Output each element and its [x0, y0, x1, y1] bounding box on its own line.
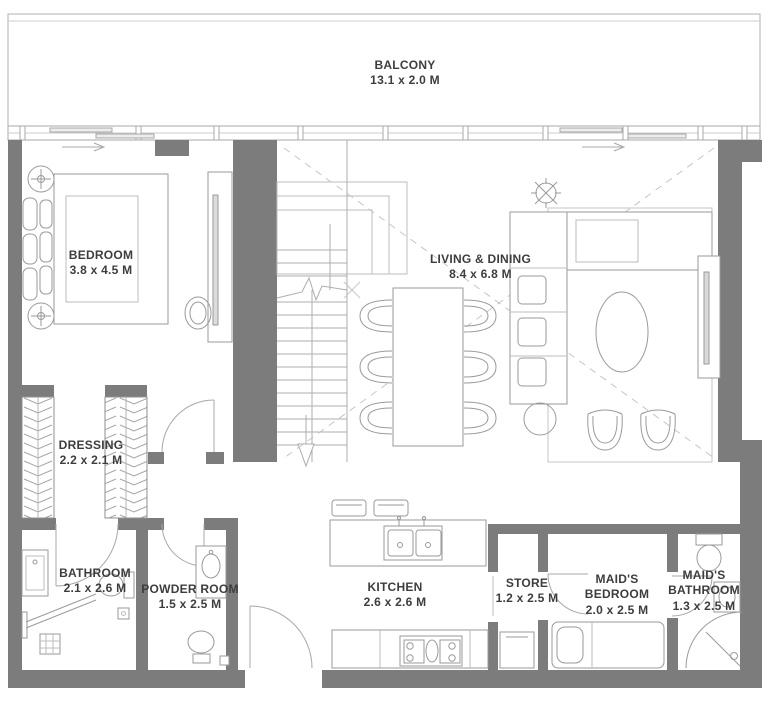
stove-icon — [400, 636, 462, 666]
room-name: MAID'S BATHROOM — [652, 568, 756, 599]
room-dims: 8.4 x 6.8 M — [393, 267, 568, 282]
side-table-icon — [524, 403, 556, 435]
room-name: KITCHEN — [333, 580, 457, 595]
ceiling-fan-icon — [531, 178, 561, 208]
room-label-kitchen: KITCHEN 2.6 x 2.6 M — [333, 580, 457, 611]
room-dims: 2.1 x 2.6 M — [33, 581, 157, 596]
stairs — [277, 140, 407, 466]
maid-shower-icon — [686, 612, 742, 668]
dining-table-icon — [393, 288, 463, 446]
floor-plan: BALCONY 13.1 x 2.0 M BEDROOM 3.8 x 4.5 M… — [0, 0, 768, 703]
room-dims: 3.8 x 4.5 M — [36, 263, 166, 278]
room-label-maids-bathroom: MAID'S BATHROOM 1.3 x 2.5 M — [652, 568, 756, 614]
room-label-store: STORE 1.2 x 2.5 M — [482, 576, 572, 607]
room-name: LIVING & DINING — [393, 252, 568, 267]
room-dims: 2.6 x 2.6 M — [333, 595, 457, 610]
room-dims: 1.5 x 2.5 M — [140, 597, 240, 612]
bar-stool-icon — [332, 500, 408, 516]
room-label-living-dining: LIVING & DINING 8.4 x 6.8 M — [393, 252, 568, 283]
dresser-icon — [208, 172, 232, 342]
room-dims: 1.2 x 2.5 M — [482, 591, 572, 606]
room-label-bedroom: BEDROOM 3.8 x 4.5 M — [36, 248, 166, 279]
coffee-table-icon — [596, 292, 648, 372]
maid-bed-icon — [552, 622, 664, 668]
room-name: POWDER ROOM — [140, 582, 240, 597]
powder-toilet-icon — [188, 631, 229, 665]
room-dims: 2.2 x 2.1 M — [30, 453, 152, 468]
room-name: DRESSING — [30, 438, 152, 453]
maid-toilet-icon — [696, 534, 722, 571]
armchair-icon — [588, 410, 675, 450]
tv-unit-icon — [698, 256, 720, 378]
room-name: BALCONY — [305, 58, 505, 73]
window-band — [8, 126, 760, 140]
shower-icon — [22, 594, 96, 654]
room-label-balcony: BALCONY 13.1 x 2.0 M — [305, 58, 505, 89]
sofa-icon — [510, 212, 712, 404]
room-dims: 1.3 x 2.5 M — [652, 599, 756, 614]
room-name: BATHROOM — [33, 566, 157, 581]
room-dims: 13.1 x 2.0 M — [305, 73, 505, 88]
room-name: BEDROOM — [36, 248, 166, 263]
room-label-dressing: DRESSING 2.2 x 2.1 M — [30, 438, 152, 469]
room-name: STORE — [482, 576, 572, 591]
stool-icon — [185, 297, 211, 329]
store-cabinet-icon — [500, 632, 534, 668]
room-label-bathroom: BATHROOM 2.1 x 2.6 M — [33, 566, 157, 597]
room-label-powder-room: POWDER ROOM 1.5 x 2.5 M — [140, 582, 240, 613]
